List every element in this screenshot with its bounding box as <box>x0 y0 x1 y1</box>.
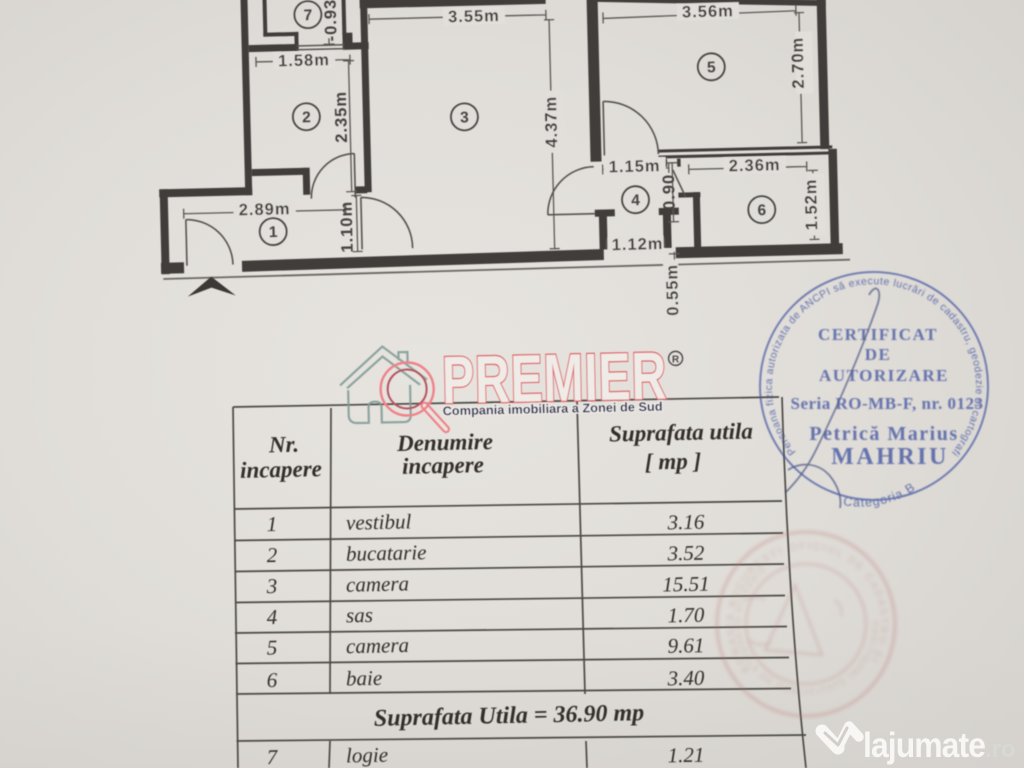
svg-text:4: 4 <box>631 192 640 209</box>
svg-text:3.55m: 3.55m <box>448 7 500 26</box>
svg-text:1.58m: 1.58m <box>278 51 330 70</box>
svg-text:2.70m: 2.70m <box>789 37 808 89</box>
svg-text:1.10m: 1.10m <box>337 201 356 253</box>
svg-text:1.12m: 1.12m <box>611 235 663 254</box>
svg-text:4: 4 <box>266 605 278 629</box>
svg-text:1.70: 1.70 <box>667 603 705 628</box>
svg-text:incapere: incapere <box>240 456 322 483</box>
svg-text:1: 1 <box>269 224 278 241</box>
svg-text:DE: DE <box>865 345 892 364</box>
svg-text:6: 6 <box>266 668 278 692</box>
svg-text:bucatarie: bucatarie <box>346 540 427 566</box>
svg-text:camera: camera <box>346 633 409 658</box>
svg-text:1.15m: 1.15m <box>609 157 661 176</box>
svg-text:AUTORIZARE: AUTORIZARE <box>819 366 949 385</box>
svg-text:2.89m: 2.89m <box>239 200 291 219</box>
svg-text:Petrică Marius: Petrică Marius <box>809 423 958 445</box>
svg-text:3.40: 3.40 <box>666 666 705 691</box>
svg-text:vestibul: vestibul <box>346 509 412 534</box>
svg-text:4.37m: 4.37m <box>542 96 561 148</box>
svg-text:2: 2 <box>302 109 311 126</box>
svg-text:2: 2 <box>266 543 278 567</box>
svg-text:1.52m: 1.52m <box>802 178 821 230</box>
svg-text:logie: logie <box>346 743 388 768</box>
svg-text:baie: baie <box>346 666 383 691</box>
svg-text:7: 7 <box>303 7 312 24</box>
svg-text:R: R <box>672 354 680 365</box>
svg-text:2.36m: 2.36m <box>729 156 781 175</box>
svg-text:15.51: 15.51 <box>662 572 710 597</box>
svg-text:-0.93: -0.93 <box>322 0 341 42</box>
svg-text:6: 6 <box>757 202 766 219</box>
svg-text:.ro: .ro <box>985 736 1016 763</box>
svg-text:5: 5 <box>266 635 277 659</box>
svg-text:1: 1 <box>266 512 277 536</box>
svg-text:1.21: 1.21 <box>667 743 704 768</box>
svg-text:lajumate: lajumate <box>863 726 985 765</box>
svg-text:3: 3 <box>460 109 469 126</box>
svg-text:sas: sas <box>346 603 373 628</box>
svg-text:incapere: incapere <box>402 452 484 479</box>
svg-text:CERTIFICAT: CERTIFICAT <box>818 325 938 344</box>
svg-text:3: 3 <box>266 574 278 598</box>
svg-text:9.61: 9.61 <box>667 633 704 658</box>
svg-text:camera: camera <box>346 571 409 596</box>
svg-text:0.90: 0.90 <box>660 174 679 211</box>
svg-text:3.16: 3.16 <box>666 510 705 535</box>
svg-text:[ mp ]: [ mp ] <box>645 448 702 474</box>
svg-text:MAHRIU: MAHRIU <box>831 444 949 470</box>
svg-text:Suprafata utila: Suprafata utila <box>609 418 753 446</box>
svg-text:2.35m: 2.35m <box>332 91 351 143</box>
svg-text:3.56m: 3.56m <box>682 2 734 21</box>
svg-text:5: 5 <box>707 59 716 76</box>
svg-text:0.55m: 0.55m <box>663 264 682 316</box>
svg-text:3.52: 3.52 <box>666 541 705 566</box>
svg-text:Nr.: Nr. <box>268 432 300 458</box>
svg-text:Seria RO-MB-F, nr. 0123: Seria RO-MB-F, nr. 0123 <box>791 394 984 413</box>
